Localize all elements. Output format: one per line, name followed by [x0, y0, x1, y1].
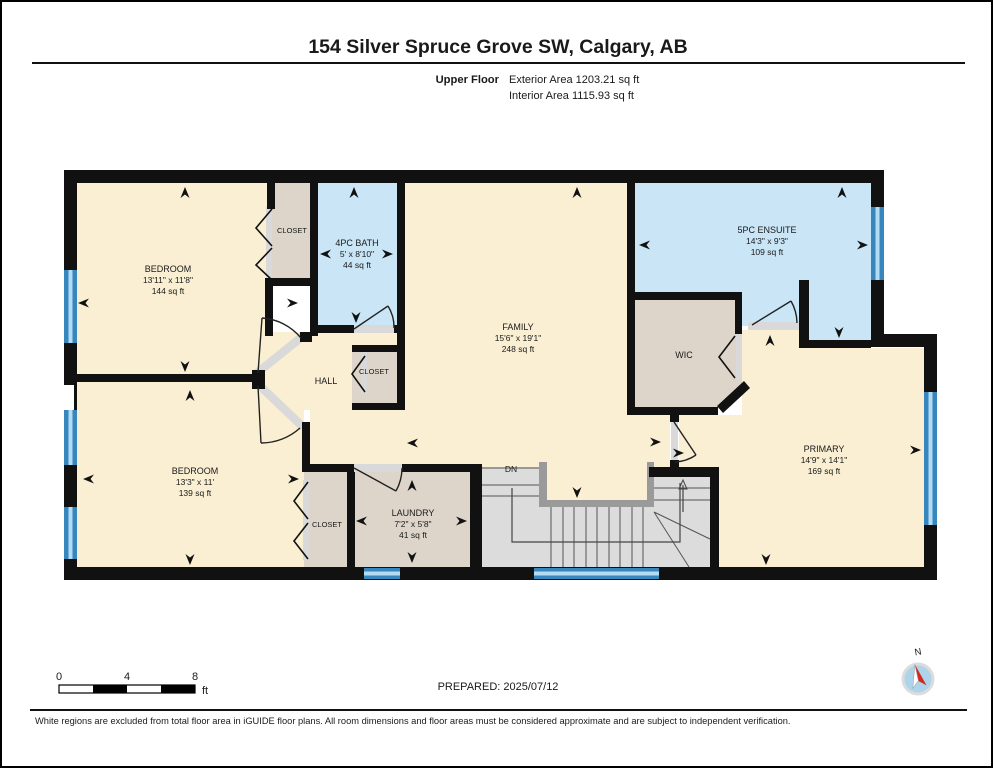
svg-text:169 sq ft: 169 sq ft — [808, 466, 841, 476]
svg-text:LAUNDRY: LAUNDRY — [392, 508, 435, 518]
svg-text:14'3" x 9'3": 14'3" x 9'3" — [746, 236, 788, 246]
svg-text:CLOSET: CLOSET — [359, 367, 389, 376]
svg-text:FAMILY: FAMILY — [502, 322, 533, 332]
page-title: 154 Silver Spruce Grove SW, Calgary, AB — [308, 36, 687, 58]
svg-text:5' x 8'10": 5' x 8'10" — [340, 249, 374, 259]
interior-area: Interior Area 1115.93 sq ft — [509, 90, 634, 102]
disclaimer-text: White regions are excluded from total fl… — [35, 716, 791, 726]
header-divider — [32, 62, 965, 64]
svg-text:HALL: HALL — [315, 376, 338, 386]
window — [534, 568, 659, 579]
svg-text:41 sq ft: 41 sq ft — [399, 530, 428, 540]
window — [924, 392, 937, 525]
svg-text:7'2" x 5'8": 7'2" x 5'8" — [394, 519, 431, 529]
scale-tick-4: 4 — [124, 671, 130, 683]
svg-text:BEDROOM: BEDROOM — [172, 466, 219, 476]
svg-text:CLOSET: CLOSET — [312, 520, 342, 529]
svg-text:44 sq ft: 44 sq ft — [343, 260, 372, 270]
header: 154 Silver Spruce Grove SW, Calgary, AB … — [32, 36, 965, 102]
svg-text:BEDROOM: BEDROOM — [145, 264, 192, 274]
floor-label: Upper Floor — [436, 74, 500, 86]
svg-text:CLOSET: CLOSET — [277, 226, 307, 235]
svg-text:109 sq ft: 109 sq ft — [751, 247, 784, 257]
room-label-bedroom2: BEDROOM 13'3" x 11' 139 sq ft — [172, 466, 219, 498]
svg-text:15'6" x 19'1": 15'6" x 19'1" — [495, 333, 542, 343]
compass-north-label: N — [914, 646, 923, 658]
svg-text:5PC ENSUITE: 5PC ENSUITE — [737, 225, 796, 235]
room-label-hall: HALL — [315, 376, 338, 386]
svg-text:4PC BATH: 4PC BATH — [335, 238, 378, 248]
window — [64, 507, 77, 559]
floor-plan-canvas: 154 Silver Spruce Grove SW, Calgary, AB … — [2, 2, 993, 768]
svg-text:139 sq ft: 139 sq ft — [179, 488, 212, 498]
staircase — [482, 462, 710, 567]
scale-tick-0: 0 — [56, 671, 62, 683]
room-label-closet2: CLOSET — [312, 520, 342, 529]
svg-text:248 sq ft: 248 sq ft — [502, 344, 535, 354]
scale-bar: 0 4 8 ft — [56, 671, 208, 697]
footer-divider — [30, 709, 967, 711]
window — [64, 410, 77, 465]
floor-plan-page: 154 Silver Spruce Grove SW, Calgary, AB … — [0, 0, 993, 768]
svg-text:13'3" x 11': 13'3" x 11' — [176, 477, 215, 487]
exterior-area: Exterior Area 1203.21 sq ft — [509, 74, 639, 86]
scale-tick-8: 8 — [192, 671, 198, 683]
svg-text:13'11" x 11'8": 13'11" x 11'8" — [143, 275, 193, 285]
window — [364, 568, 400, 579]
svg-text:PRIMARY: PRIMARY — [804, 444, 845, 454]
stair-half-wall — [539, 500, 654, 507]
room-label-hall-closet: CLOSET — [359, 367, 389, 376]
svg-text:WIC: WIC — [675, 350, 693, 360]
room-label-wic: WIC — [675, 350, 693, 360]
svg-text:144 sq ft: 144 sq ft — [152, 286, 185, 296]
stairs-down-label: DN — [505, 464, 517, 474]
svg-text:14'9" x 14'1": 14'9" x 14'1" — [801, 455, 848, 465]
prepared-date: PREPARED: 2025/07/12 — [438, 681, 559, 693]
scale-unit: ft — [202, 685, 208, 697]
room-label-closet1: CLOSET — [277, 226, 307, 235]
compass-icon: N — [903, 646, 933, 694]
window — [871, 207, 884, 280]
window — [64, 270, 77, 343]
